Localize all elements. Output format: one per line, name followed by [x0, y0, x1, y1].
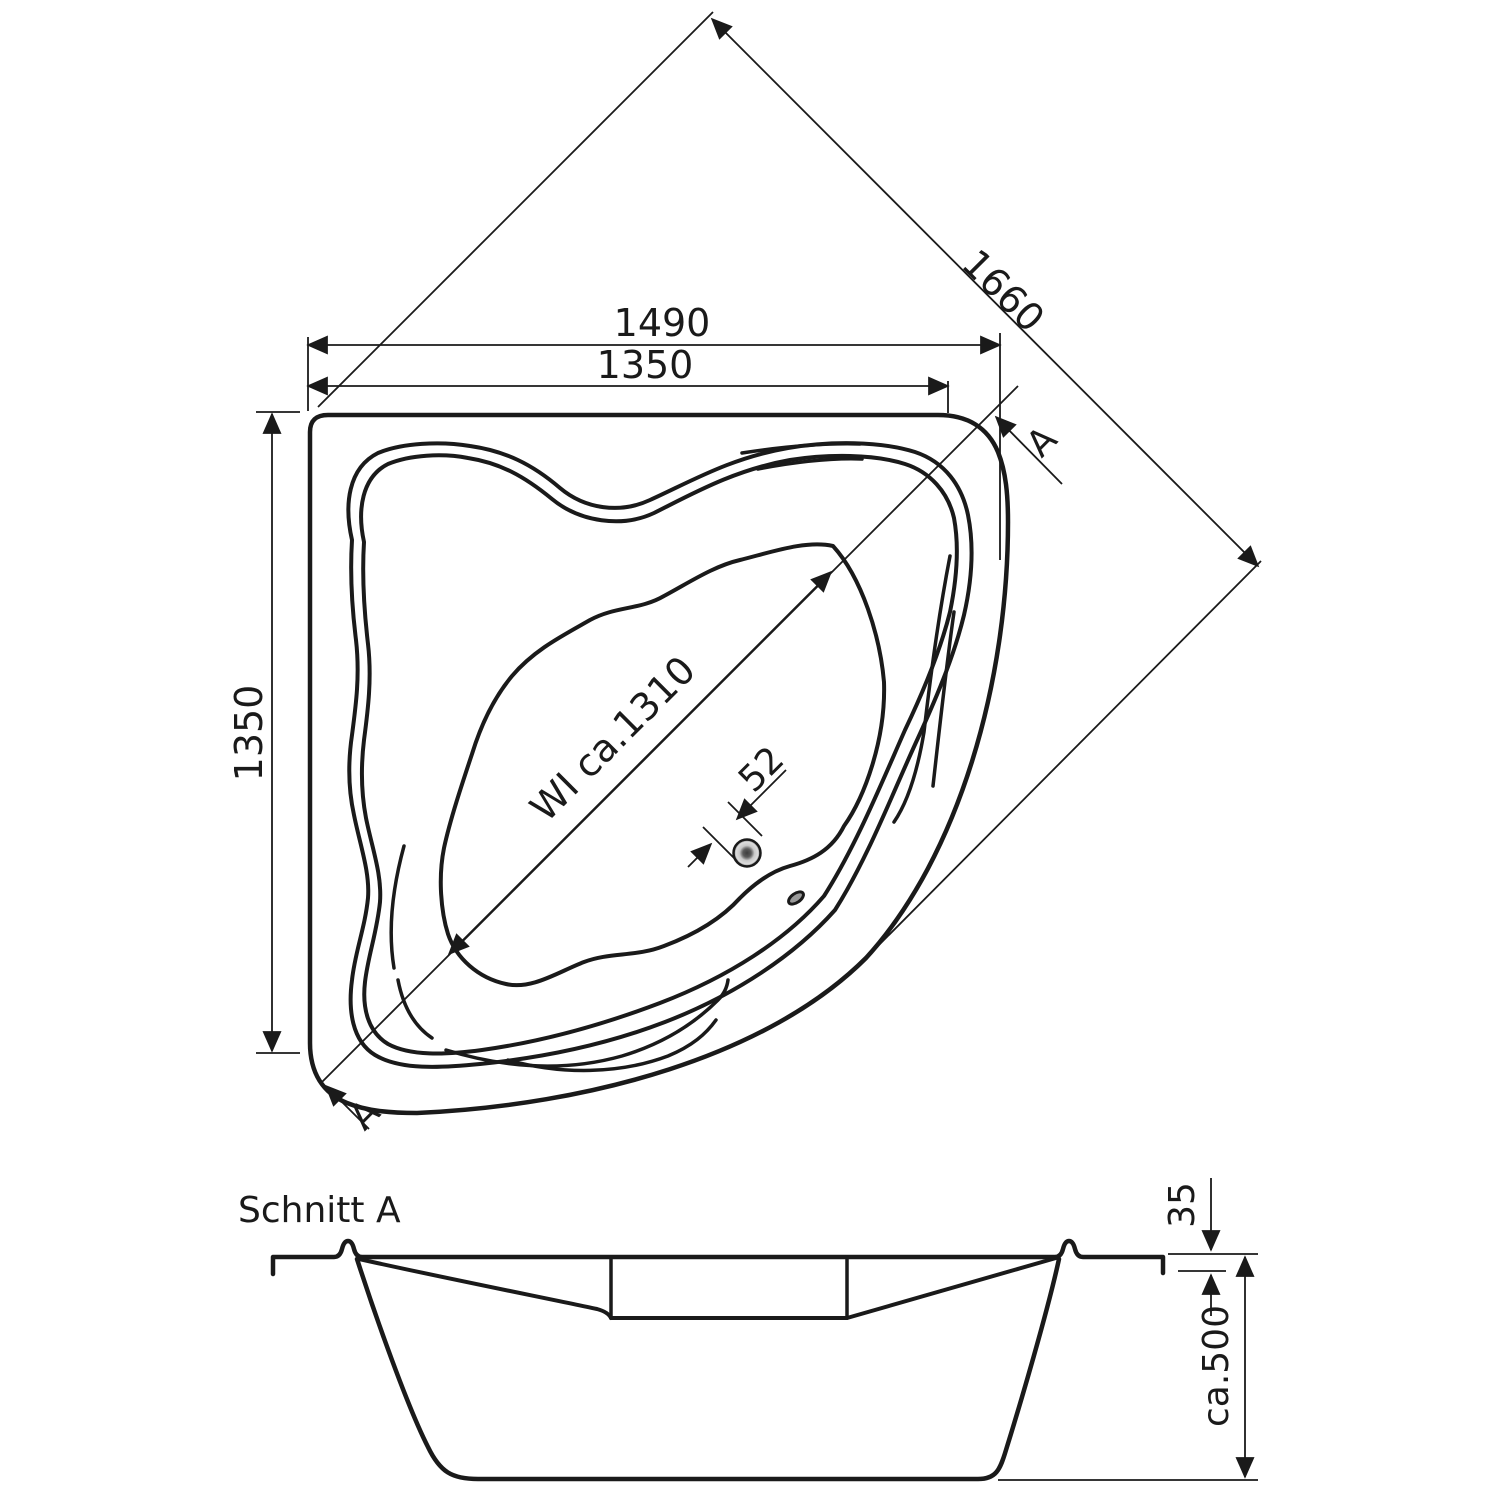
dim-wall-width-label: 1350	[597, 343, 694, 387]
dim-depth-label: ca.500	[1196, 1305, 1237, 1427]
dim-drain-label: 52	[731, 739, 792, 800]
dim-diagonal-label: 1660	[953, 241, 1053, 341]
tub-outline	[310, 415, 1008, 1113]
armrest-arc-left-upper	[391, 846, 404, 968]
section-title: Schnitt A	[238, 1190, 401, 1231]
dim-wall-height: 1350	[227, 412, 300, 1053]
dim-inner-diagonal-label: WI ca.1310	[522, 648, 704, 830]
section-cut-line: A A	[322, 386, 1066, 1138]
dim-rim-height: 35	[1162, 1178, 1258, 1316]
section-outer-shell	[357, 1259, 1059, 1479]
bathtub-technical-drawing: A A 1490 1350 1350 1660	[0, 0, 1500, 1500]
technical-drawing-page: A A 1490 1350 1350 1660	[0, 0, 1500, 1500]
dim-overall-width: 1490	[308, 301, 1000, 560]
section-inner-slope-right	[847, 1258, 1056, 1318]
rim-contour-inner	[361, 455, 957, 1053]
dim-depth: ca.500	[998, 1257, 1258, 1480]
dim-rim-height-label: 35	[1162, 1182, 1203, 1228]
dim-diagonal: 1660	[318, 12, 1261, 952]
dim-overall-width-label: 1490	[614, 301, 711, 345]
rim-contour-outer	[348, 443, 971, 1067]
grip-line-top-right-1	[742, 444, 860, 453]
section-marker-bottom-label: A	[342, 1092, 389, 1139]
section-inner-slope-left	[359, 1259, 611, 1318]
section-marker-top-label: A	[1019, 419, 1066, 466]
section-view: Schnitt A 35 ca.500	[238, 1178, 1258, 1480]
overflow-icon	[786, 889, 805, 906]
basin-contour	[441, 544, 884, 985]
dim-wall-width: 1350	[308, 343, 948, 413]
dim-wall-height-label: 1350	[227, 685, 271, 782]
drain-icon	[734, 840, 761, 867]
plan-view: A A 1490 1350 1350 1660	[227, 12, 1261, 1138]
